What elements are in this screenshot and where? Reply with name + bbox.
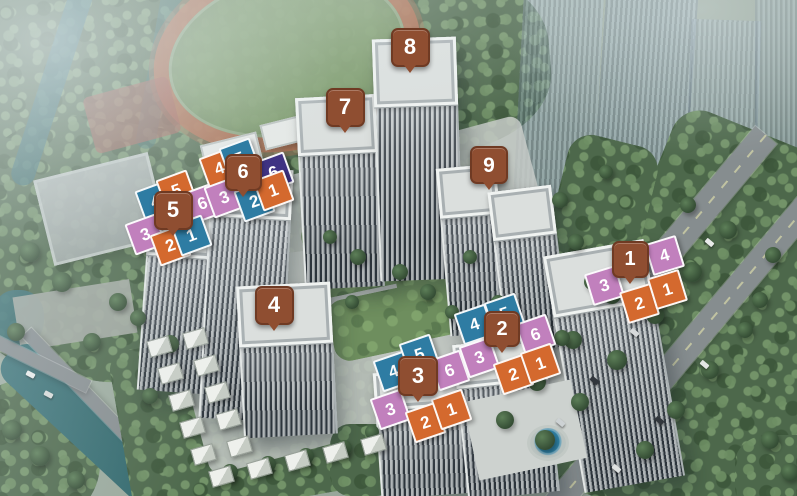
building-pin-3[interactable]: 3 <box>398 356 438 396</box>
aerial-rendering-scene: 4563214536214563214536213421 123456789 <box>0 0 797 496</box>
tree <box>392 264 408 280</box>
tree <box>109 293 127 311</box>
building-pin-6[interactable]: 6 <box>225 154 262 191</box>
tree <box>67 471 85 489</box>
building-pin-2[interactable]: 2 <box>484 311 520 347</box>
tree <box>719 221 737 239</box>
tree <box>2 420 22 440</box>
tree <box>142 388 158 404</box>
tree <box>130 310 146 326</box>
tree <box>52 272 72 292</box>
tree <box>463 250 477 264</box>
tree <box>680 197 696 213</box>
tree <box>554 330 570 346</box>
tree <box>323 230 337 244</box>
tree <box>30 446 50 466</box>
tree <box>761 431 779 449</box>
building-pin-4[interactable]: 4 <box>255 286 294 325</box>
tree <box>535 430 555 450</box>
tree <box>636 441 654 459</box>
tree <box>571 393 589 411</box>
tree <box>83 333 101 351</box>
city-tower <box>755 0 797 152</box>
tree <box>345 295 359 309</box>
building-pin-8[interactable]: 8 <box>391 28 430 67</box>
tree <box>420 284 436 300</box>
tree <box>737 322 753 338</box>
building-pin-9[interactable]: 9 <box>470 146 508 184</box>
tree <box>682 262 702 282</box>
tree <box>667 401 685 419</box>
tree <box>765 247 781 263</box>
building-pin-5[interactable]: 5 <box>154 191 193 230</box>
tree <box>781 463 797 481</box>
tree <box>350 249 366 265</box>
tree <box>607 350 627 370</box>
tree <box>599 165 613 179</box>
tree <box>20 242 40 262</box>
tree <box>568 234 584 250</box>
tree <box>7 323 25 341</box>
tree <box>752 292 768 308</box>
tree <box>552 192 568 208</box>
tree <box>496 411 514 429</box>
tower-roof <box>487 185 557 242</box>
building-pin-7[interactable]: 7 <box>326 88 365 127</box>
building-pin-1[interactable]: 1 <box>612 241 649 278</box>
